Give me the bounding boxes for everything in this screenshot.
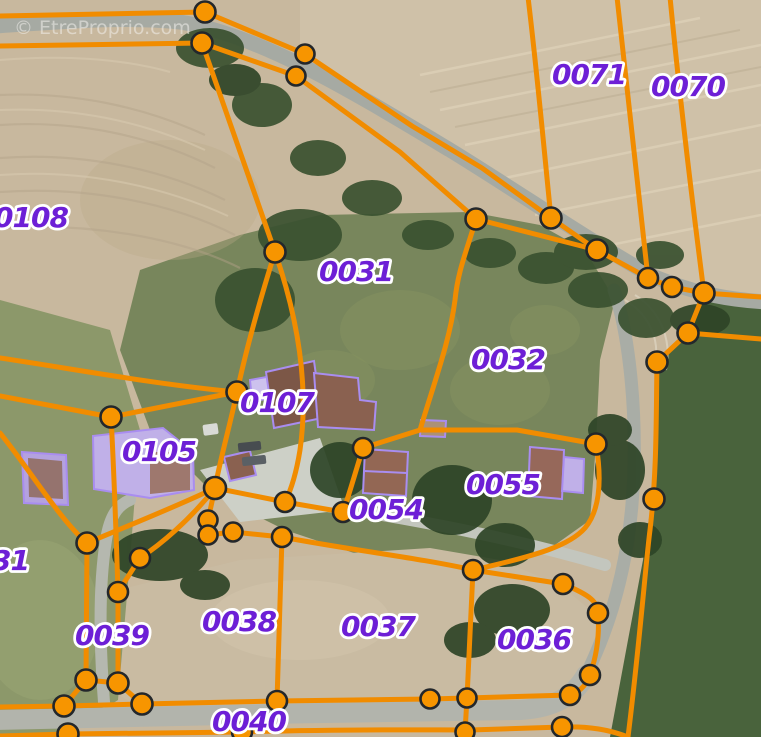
boundary-node (58, 724, 79, 737)
boundary-node (456, 723, 475, 737)
boundary-node (638, 268, 658, 288)
watermark: © EtreProprio.com (14, 17, 191, 39)
parcel-label-0107[interactable]: 0107 (240, 386, 315, 419)
boundary-node (587, 240, 608, 261)
parcel-label-0031[interactable]: 0031 (319, 255, 393, 288)
boundary-node (272, 527, 292, 547)
boundary-node (421, 690, 440, 709)
boundary-node (192, 33, 213, 54)
boundary-node (224, 523, 243, 542)
parcel-label-0070[interactable]: 0070 (651, 70, 725, 103)
boundary-node (458, 689, 477, 708)
parcel-label-0055[interactable]: 0055 (466, 468, 540, 501)
boundary-node (199, 526, 218, 545)
boundary-node (678, 323, 699, 344)
boundary-node (694, 283, 715, 304)
boundary-node (662, 277, 682, 297)
boundary-node (580, 665, 600, 685)
boundary-line (86, 543, 87, 680)
boundary-node (287, 67, 306, 86)
boundary-node (586, 434, 607, 455)
parcel-label-0071[interactable]: 0071 (552, 58, 626, 91)
boundary-node (108, 673, 129, 694)
parcel-label-0039[interactable]: 0039 (75, 619, 149, 652)
parcel-label-0032[interactable]: 0032 (471, 343, 545, 376)
building-footprint (224, 451, 256, 481)
boundary-node (76, 670, 97, 691)
boundary-node (353, 438, 373, 458)
parcel-label-0036[interactable]: 0036 (497, 623, 571, 656)
parcel-label-0037[interactable]: 0037 (341, 610, 416, 643)
boundary-node (108, 582, 128, 602)
boundary-node (463, 560, 483, 580)
boundary-node (204, 477, 226, 499)
boundary-node (552, 717, 572, 737)
building-footprint (562, 457, 584, 493)
boundary-node (553, 574, 573, 594)
boundary-node (275, 492, 295, 512)
boundary-node (265, 242, 286, 263)
boundary-node (132, 694, 153, 715)
cadastral-map-viewport[interactable]: 0108 0031 0032 0071 0070 0107 0105 0055 … (0, 0, 761, 737)
boundary-node (101, 407, 122, 428)
boundary-node (296, 45, 315, 64)
parcel-label-0040[interactable]: 0040 (212, 705, 286, 737)
parcel-label-0108[interactable]: 0108 (0, 201, 68, 234)
boundary-node (77, 533, 98, 554)
parcel-label-31[interactable]: 31 (0, 544, 29, 577)
boundary-node (644, 489, 665, 510)
parcel-label-0038[interactable]: 0038 (202, 605, 276, 638)
boundary-node (588, 603, 608, 623)
boundary-node (130, 548, 150, 568)
boundary-node (54, 696, 75, 717)
boundary-node (560, 685, 580, 705)
parcel-label-0105[interactable]: 0105 (122, 435, 196, 468)
boundary-node (195, 2, 216, 23)
map-canvas[interactable]: 0108 0031 0032 0071 0070 0107 0105 0055 … (0, 0, 761, 737)
parcel-label-0054[interactable]: 0054 (349, 493, 423, 526)
boundary-node (541, 208, 562, 229)
boundary-node (647, 352, 668, 373)
boundary-node (466, 209, 487, 230)
